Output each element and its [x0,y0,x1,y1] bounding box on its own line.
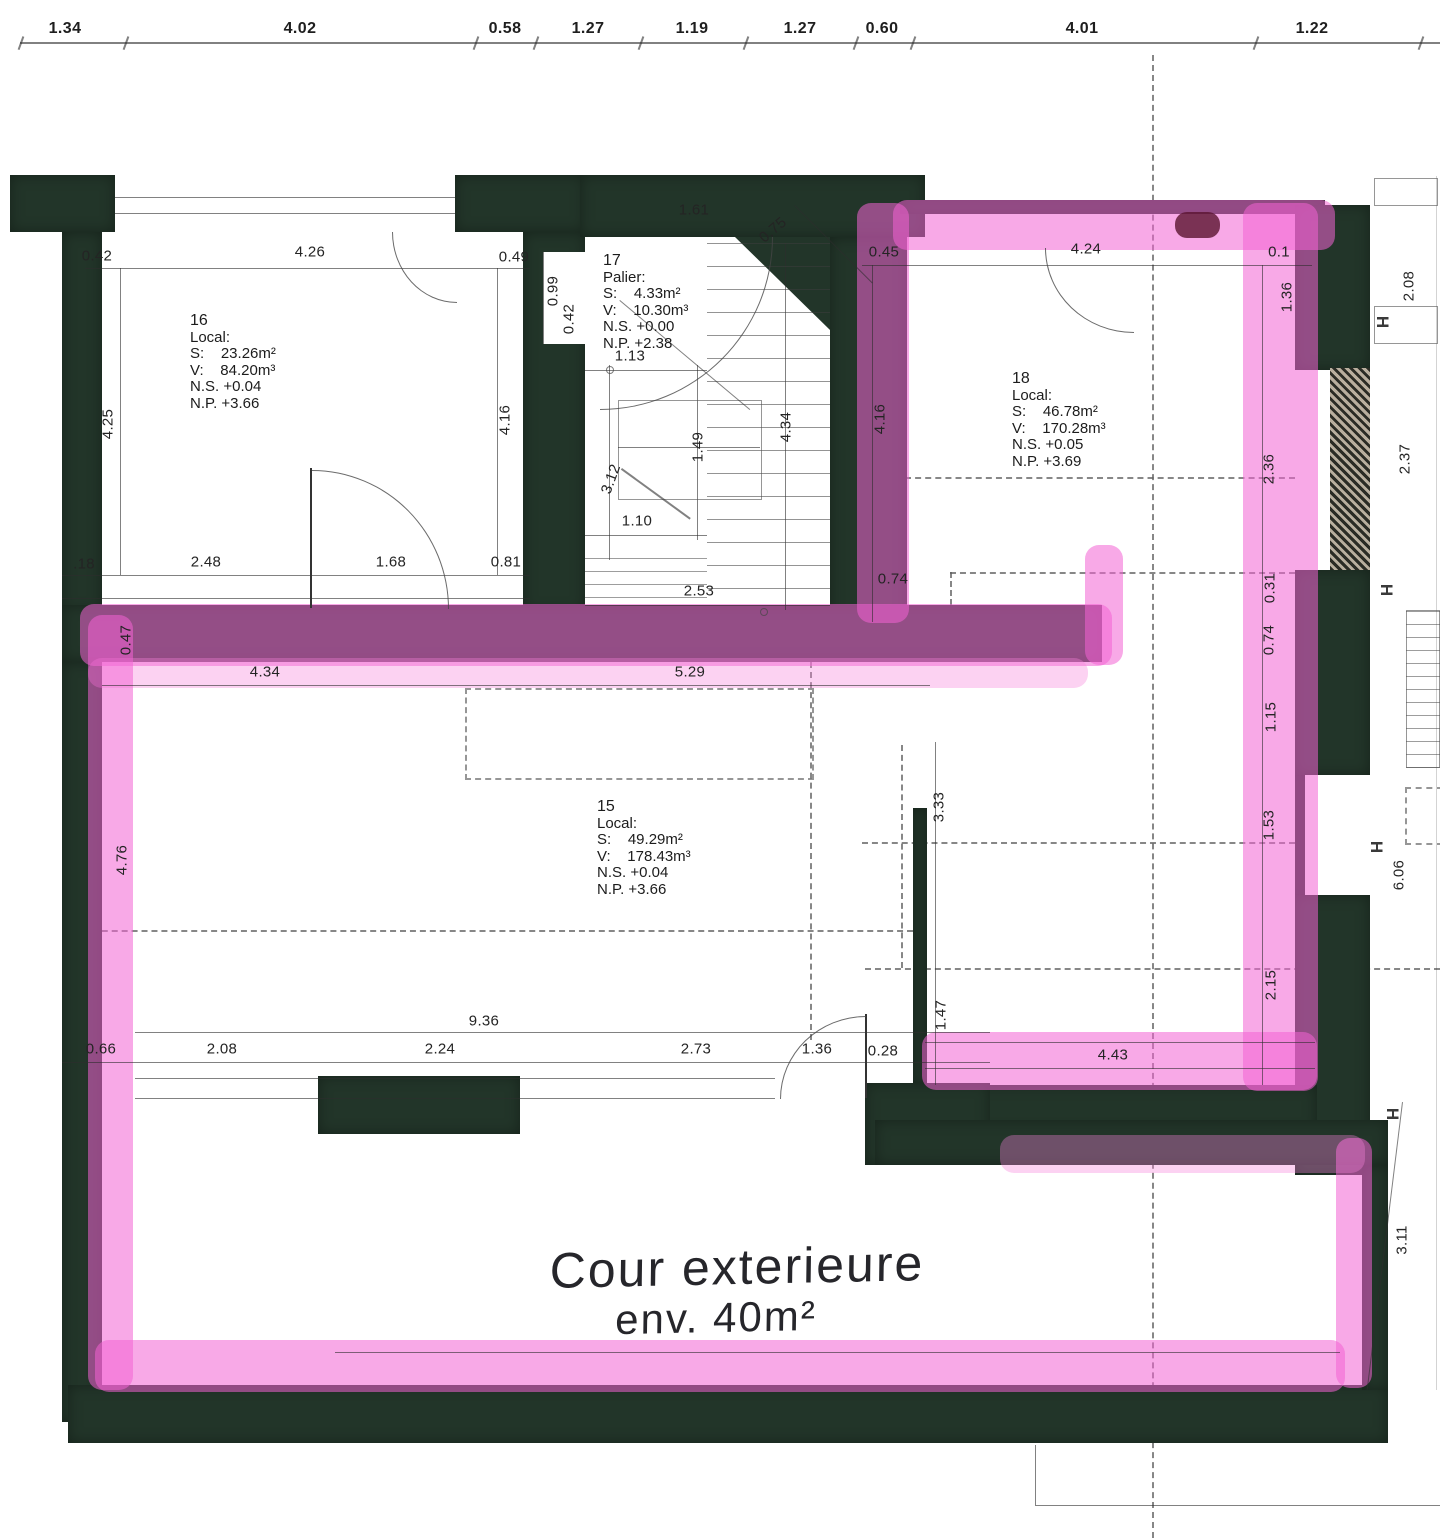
dimension-label: 0.47 [118,625,135,655]
highlight-court-right [1336,1138,1372,1388]
highlight-right-wall [1243,203,1318,1091]
dimension-label: 1.10 [622,513,652,530]
dimension-label: 0.28 [868,1043,898,1060]
axis-dashed-line [1152,55,1154,1538]
dimension-label: 0.42 [561,304,578,334]
door-arc [780,1016,866,1099]
window-line [135,1078,775,1079]
dimension-label: 1.36 [1279,282,1296,312]
dimension-label: 4.34 [250,664,280,681]
dimension-label: 1.68 [376,554,406,571]
dimension-label: 1.15 [1263,702,1280,732]
ruler-value: 0.60 [866,20,899,38]
room-info-line: Local: [1012,388,1106,405]
dimension-label: 4.24 [1071,241,1101,258]
hidden-line [901,745,903,968]
dimension-label: 3.11 [1394,1225,1411,1254]
dimension-label: 2.37 [1397,444,1414,474]
ibeam-column-icon: H [1366,841,1386,853]
room-info-block: 15Local:S: 49.29m²V: 178.43m³N.S. +0.04N… [597,798,691,898]
dimension-label: 5.29 [675,664,705,681]
dimension-label: 1.47 [933,1000,950,1030]
ink-blob [1175,212,1220,238]
dim-line [85,268,530,269]
ruler-value: 1.27 [572,20,605,38]
room-info-line: S: 46.78m² [1012,404,1106,421]
highlight-court-bottom [95,1340,1345,1392]
dimension-label: 2.48 [191,554,221,571]
dim-line [62,598,530,599]
ruler-value: 4.01 [1066,20,1099,38]
ruler-value: 0.58 [489,20,522,38]
highlight-court-top [1000,1135,1365,1173]
dimension-label: 0.45 [869,244,899,261]
court-edge-line [335,1352,1340,1353]
boundary-line [1436,176,1437,1390]
dimension-label: 3.33 [931,792,948,822]
dimension-label: 0.31 [1262,573,1279,603]
wall-segment [68,1385,1388,1443]
room-info-line: 16 [190,312,276,330]
dimension-label: 0.42 [82,248,112,265]
boundary-line [1035,1445,1036,1505]
ruler-value: 1.22 [1296,20,1329,38]
room-info-line: N.P. +3.66 [190,396,276,413]
adjacent-structure [1374,178,1438,206]
window-opening [115,190,455,222]
room-info-line: 15 [597,798,691,816]
dimension-label: 0.1 [1268,244,1290,261]
dimension-label: .18 [73,556,95,573]
ibeam-column-icon: H [1382,1108,1402,1120]
dimension-label: 4.26 [295,244,325,261]
room-info-line: V: 170.28m³ [1012,421,1106,438]
dimension-label: 1.49 [690,432,707,462]
hidden-line [62,930,913,932]
ruler-value: 1.27 [784,20,817,38]
dimension-label: 4.43 [1098,1047,1128,1064]
dimension-label: 0.99 [545,276,562,306]
ibeam-column-icon: H [1372,316,1392,328]
dimension-label: 4.34 [778,412,795,442]
dim-line [925,1068,1315,1069]
dimension-label: 2.08 [207,1041,237,1058]
hidden-line [950,572,952,605]
room-info-line: V: 178.43m³ [597,849,691,866]
door-arc [1045,248,1134,333]
stair-node [760,608,768,616]
dimension-label: 0.66 [86,1041,116,1058]
room-info-line: V: 84.20m³ [190,363,276,380]
room-info-line: S: 23.26m² [190,346,276,363]
dimension-label: 4.16 [872,404,889,434]
boundary-line [1035,1505,1440,1506]
window-line [115,197,455,198]
dim-line [62,575,530,576]
dim-line [872,265,873,622]
dim-line [1262,265,1263,1085]
wall-segment [318,1076,520,1134]
handwritten-note-line2: env. 40m² [615,1292,817,1344]
dimension-label: 0.74 [1261,625,1278,655]
dim-line [925,1042,1315,1043]
dimension-label: 2.53 [684,583,714,600]
dim-line [102,685,930,686]
room-info-line: 18 [1012,370,1106,388]
highlight-fringe [88,658,1088,688]
room-info-line: Local: [190,330,276,347]
room-info-line: N.P. +2.38 [603,336,688,353]
dimension-label: 1.36 [802,1041,832,1058]
highlight-middle-wall [80,604,1112,666]
dimension-label: 2.08 [1401,271,1418,301]
ibeam-column-icon: H [1376,584,1396,596]
dimension-label: 2.73 [681,1041,711,1058]
dim-line [120,268,121,575]
wall-segment [455,175,585,232]
room-info-block: 16Local:S: 23.26m²V: 84.20m³N.S. +0.04N.… [190,312,276,412]
room-info-line: N.P. +3.66 [597,882,691,899]
highlight-elbow [1085,545,1123,665]
dimension-label: 2.24 [425,1041,455,1058]
hidden-line [905,477,1295,479]
door-arc [312,470,449,609]
ruler-value: 4.02 [284,20,317,38]
exterior-stair [1406,610,1440,768]
room-info-line: N.S. +0.05 [1012,437,1106,454]
floor-plan-canvas: H H H H 1.344.020.581.271.191.270.604.01… [0,0,1440,1538]
dimension-label: 0.74 [878,571,908,588]
dimension-label: 2.36 [1261,454,1278,484]
room-info-line: S: 49.29m² [597,832,691,849]
dimension-label: 2.15 [1263,970,1280,1000]
room-info-line: V: 10.30m³ [603,303,688,320]
ruler-line [20,42,1440,44]
adjacent-dashed [1405,787,1440,845]
handwritten-note-line1: Cour exterieure [549,1234,924,1300]
room-info-line: N.P. +3.69 [1012,454,1106,471]
dimension-label: 9.36 [469,1013,499,1030]
dimension-label: 4.25 [100,409,117,439]
room-info-line: N.S. +0.04 [190,379,276,396]
room-info-line: N.S. +0.00 [603,319,688,336]
dim-line [585,535,707,536]
room-info-line: 17 [603,252,688,270]
door-arc [392,232,457,303]
wall-segment [10,175,115,232]
dimension-label: 0.81 [491,554,521,571]
ruler-value: 1.34 [49,20,82,38]
room-info-block: 17Palier:S: 4.33m²V: 10.30m³N.S. +0.00N.… [603,252,688,352]
window-line [135,1098,775,1099]
dimension-label: 4.76 [114,845,131,875]
room-info-line: Local: [597,816,691,833]
dimension-label: 0.49 [499,249,529,266]
dimension-label: 4.16 [497,405,514,435]
room-info-block: 18Local:S: 46.78m²V: 170.28m³N.S. +0.05N… [1012,370,1106,470]
dimension-label: 6.06 [1391,860,1408,890]
room-info-line: N.S. +0.04 [597,865,691,882]
highlight-left-wall [88,615,133,1390]
room-info-line: S: 4.33m² [603,286,688,303]
room-info-line: Palier: [603,270,688,287]
ruler-value: 1.19 [676,20,709,38]
window-line [115,213,455,214]
hidden-rect [465,688,814,780]
dimension-label: 1.61 [679,202,709,219]
glazed-window-hatch [1330,368,1370,570]
dimension-label: 1.53 [1261,810,1278,840]
